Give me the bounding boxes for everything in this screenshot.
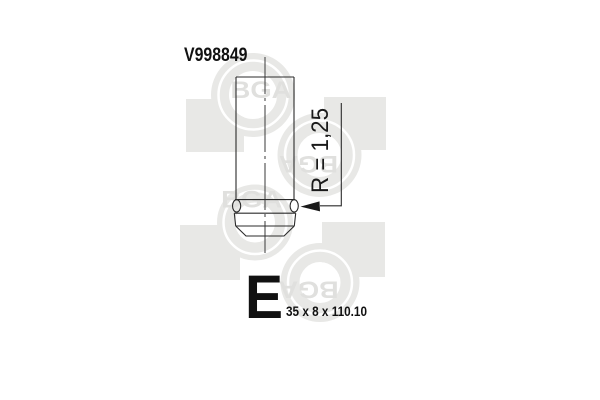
- svg-text:R = 1,25: R = 1,25: [307, 108, 334, 193]
- svg-text:V998849: V998849: [184, 45, 248, 66]
- svg-text:BGA: BGA: [231, 77, 292, 104]
- svg-text:BGA: BGA: [279, 275, 339, 302]
- svg-text:E: E: [245, 263, 283, 331]
- svg-text:35 x 8 x 110.10: 35 x 8 x 110.10: [286, 304, 367, 319]
